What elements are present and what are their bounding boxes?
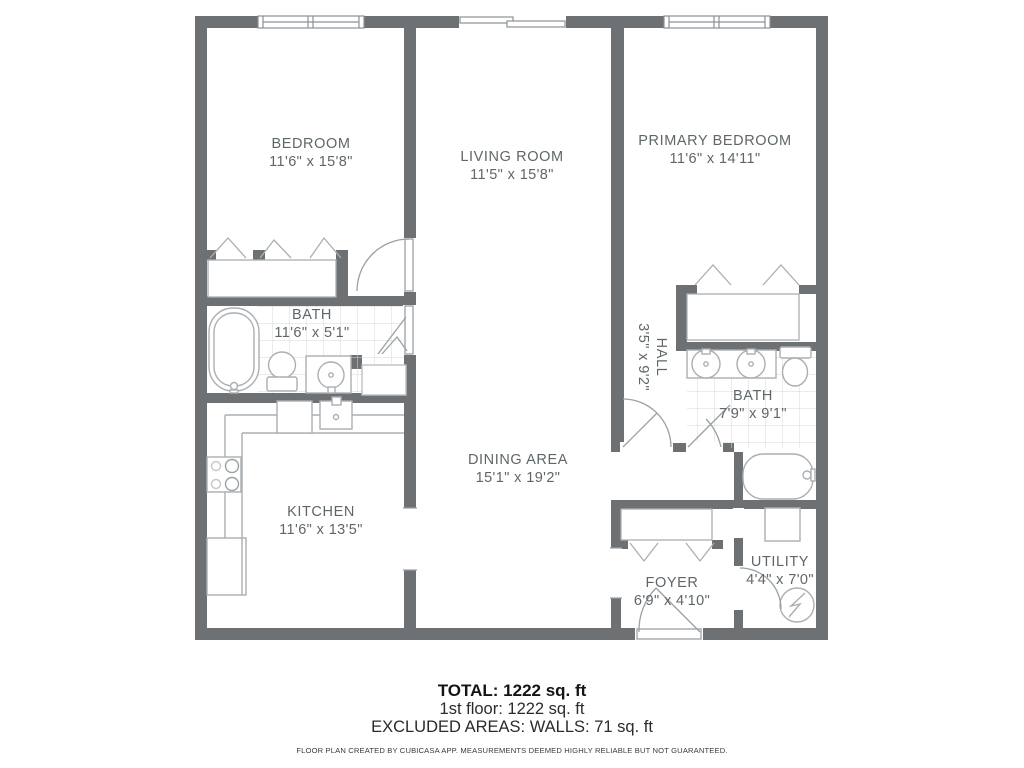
- opening: [733, 508, 744, 538]
- stove-icon: [207, 457, 241, 492]
- water-heater-icon: [780, 588, 814, 622]
- bathtub-icon: [209, 308, 259, 393]
- toilet-icon: [267, 352, 297, 391]
- kitchen-sink-icon: [320, 397, 352, 429]
- room-name: BATH: [274, 306, 349, 324]
- room-name: FOYER: [634, 574, 710, 592]
- door-icon: [357, 238, 417, 292]
- opening: [403, 508, 417, 570]
- room-name: BATH: [719, 387, 787, 405]
- room-name: KITCHEN: [279, 503, 363, 521]
- room-label-living-room: LIVING ROOM 11'5" x 15'8": [460, 148, 563, 184]
- window-icon: [258, 16, 364, 28]
- room-dims: 11'6" x 14'11": [638, 150, 792, 168]
- bedroom-closet: [208, 238, 341, 297]
- double-sink-counter-icon: [687, 349, 776, 378]
- room-label-bath-1: BATH 11'6" x 5'1": [274, 306, 349, 342]
- excluded-area-text: EXCLUDED AREAS: WALLS: 71 sq. ft: [0, 718, 1024, 736]
- room-dims: 11'6" x 13'5": [279, 521, 363, 539]
- summary-footer: TOTAL: 1222 sq. ft 1st floor: 1222 sq. f…: [0, 681, 1024, 755]
- room-label-foyer: FOYER 6'9" x 4'10": [634, 574, 710, 610]
- foyer-closet: [621, 509, 714, 561]
- room-name: DINING AREA: [468, 451, 568, 469]
- hanger-chevron-icon: [630, 543, 714, 561]
- floor-area-text: 1st floor: 1222 sq. ft: [0, 700, 1024, 718]
- room-label-dining-area: DINING AREA 15'1" x 19'2": [468, 451, 568, 487]
- primary-closet: [687, 265, 799, 340]
- room-label-utility: UTILITY 4'4" x 7'0": [746, 553, 814, 589]
- bathtub-icon: [743, 454, 815, 499]
- room-name: LIVING ROOM: [460, 148, 563, 166]
- room-dims: 11'6" x 5'1": [274, 324, 349, 342]
- fridge-icon: [207, 538, 246, 595]
- floor-plan-graphic: [0, 0, 1024, 768]
- hanger-chevron-icon: [695, 265, 799, 285]
- opening: [610, 548, 622, 598]
- window-icon: [664, 16, 770, 28]
- room-dims: 3'5" x 9'2": [634, 323, 652, 391]
- room-dims: 7'9" x 9'1": [719, 405, 787, 423]
- room-label-kitchen: KITCHEN 11'6" x 13'5": [279, 503, 363, 539]
- room-name: BEDROOM: [269, 135, 353, 153]
- room-dims: 6'9" x 4'10": [634, 592, 710, 610]
- room-label-hall: HALL 3'5" x 9'2": [634, 323, 670, 391]
- room-dims: 4'4" x 7'0": [746, 571, 814, 589]
- total-area-text: TOTAL: 1222 sq. ft: [0, 681, 1024, 700]
- dishwasher-icon: [277, 401, 312, 433]
- room-name: HALL: [652, 323, 670, 391]
- room-name: UTILITY: [746, 553, 814, 571]
- room-name: PRIMARY BEDROOM: [638, 132, 792, 150]
- washer-icon: [765, 508, 800, 541]
- disclaimer-text: FLOOR PLAN CREATED BY CUBICASA APP. MEAS…: [0, 746, 1024, 755]
- room-label-bedroom: BEDROOM 11'6" x 15'8": [269, 135, 353, 171]
- windows: [258, 15, 770, 29]
- room-dims: 15'1" x 19'2": [468, 469, 568, 487]
- room-dims: 11'6" x 15'8": [269, 153, 353, 171]
- room-label-primary-bedroom: PRIMARY BEDROOM 11'6" x 14'11": [638, 132, 792, 168]
- sink-vanity-icon: [306, 356, 351, 393]
- linen-closet: [362, 365, 406, 395]
- door-icon: [620, 399, 673, 453]
- room-label-bath-2: BATH 7'9" x 9'1": [719, 387, 787, 423]
- floor-plan-page: BEDROOM 11'6" x 15'8" LIVING ROOM 11'5" …: [0, 0, 1024, 768]
- hanger-chevron-icon: [210, 238, 341, 258]
- room-dims: 11'5" x 15'8": [460, 166, 563, 184]
- sliding-door-icon: [459, 15, 566, 29]
